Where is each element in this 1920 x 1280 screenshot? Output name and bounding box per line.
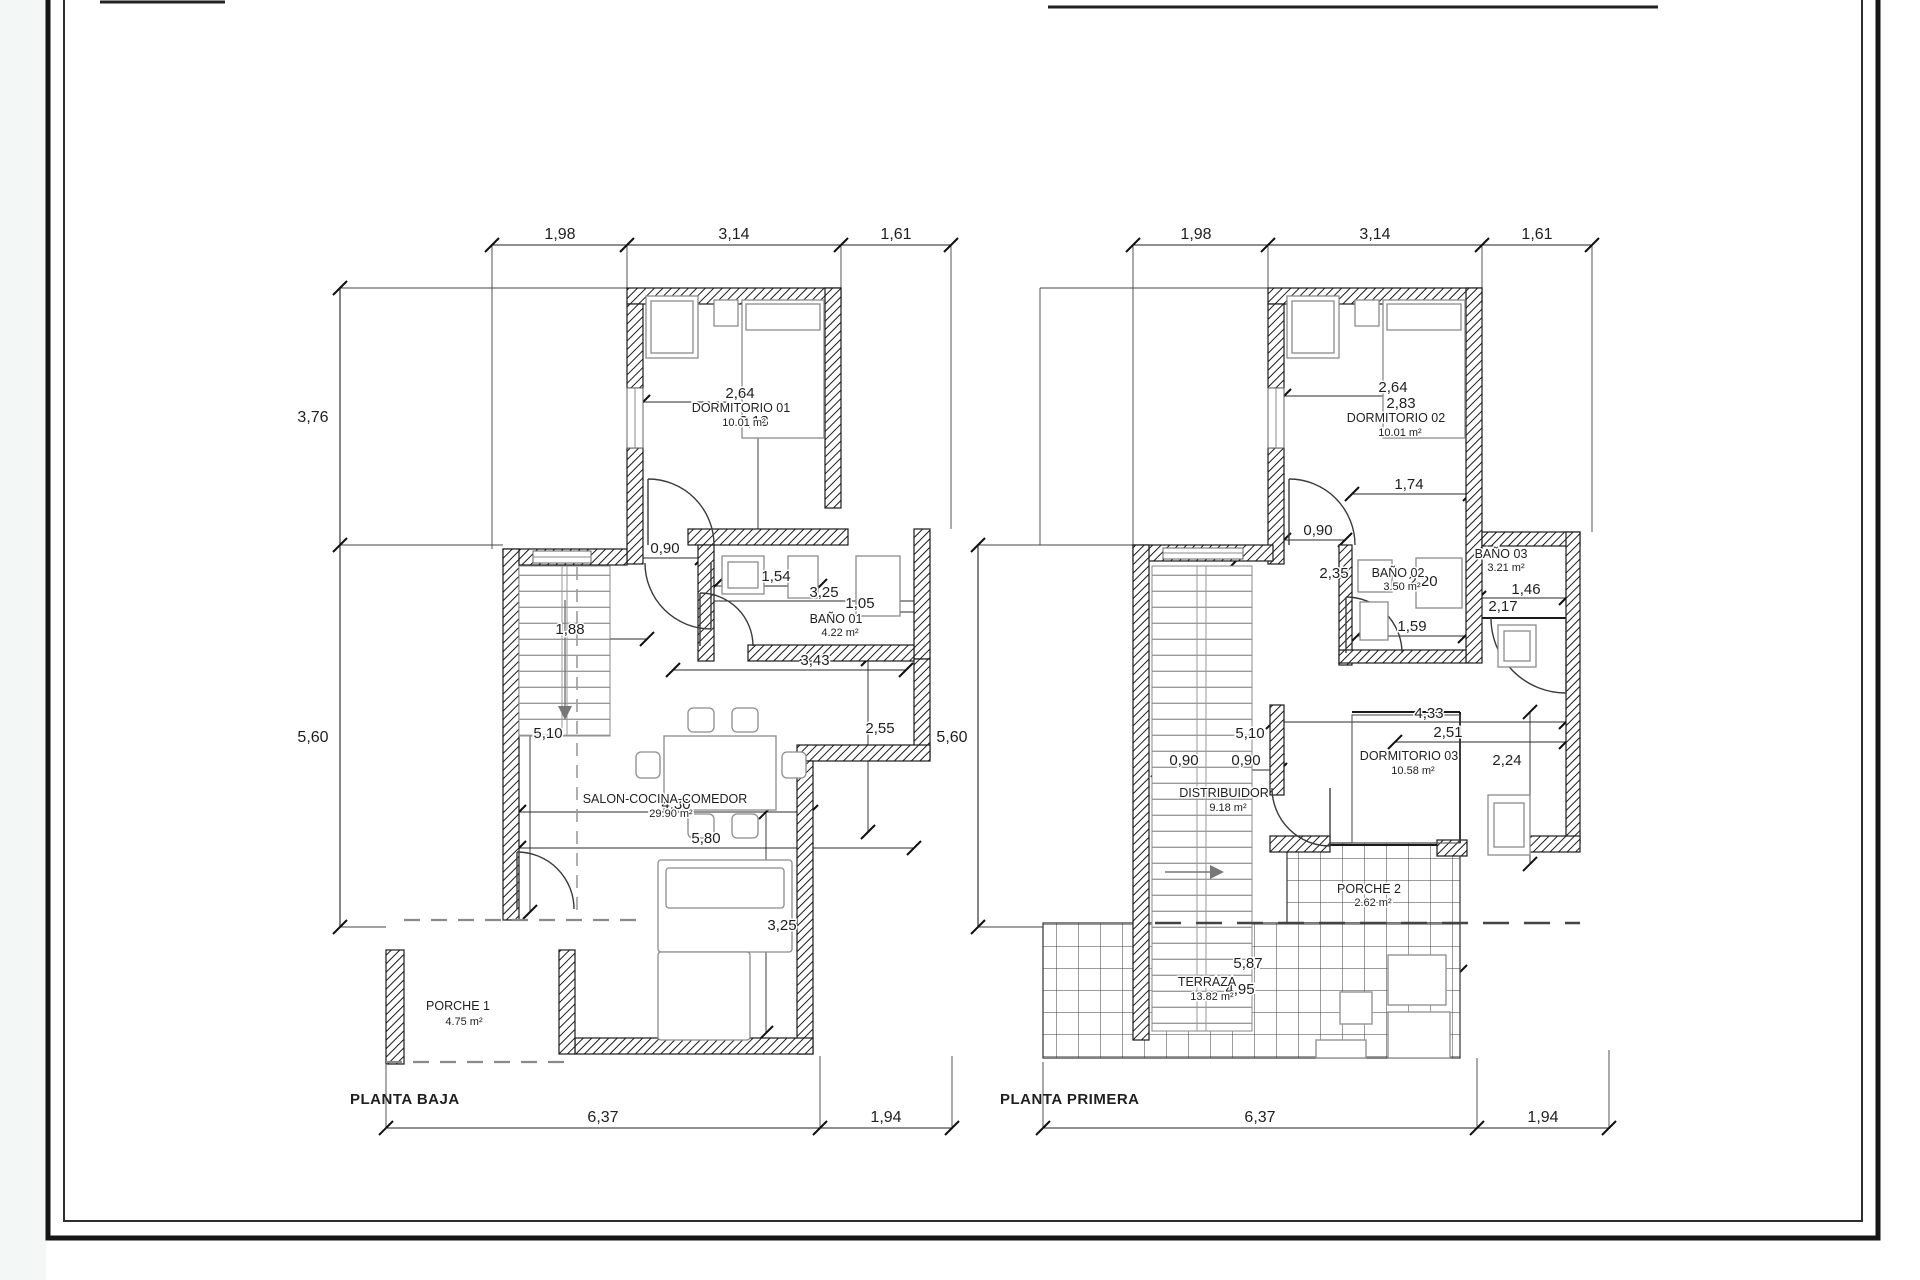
dim-primera-top-1: 3,14 xyxy=(1359,226,1390,243)
plan-title-primera: PLANTA PRIMERA xyxy=(1000,1091,1140,1108)
room-distribuidor: DISTRIBUIDOR xyxy=(1179,786,1269,800)
room-dormitorio-02-area: 10.01 m² xyxy=(1378,427,1422,439)
dim-baja-left-1: 5,60 xyxy=(297,729,328,746)
room-porche-1-area: 4.75 m² xyxy=(445,1016,483,1028)
dim-baja-255: 2,55 xyxy=(865,720,894,737)
room-bano-01: BAÑO 01 xyxy=(810,612,863,626)
dim-primera-top-2: 1,61 xyxy=(1521,226,1552,243)
dim-primera-bottom-1: 1,94 xyxy=(1527,1109,1558,1126)
dim-baja-343: 3,43 xyxy=(800,652,829,669)
room-salon: SALON-COCINA-COMEDOR xyxy=(583,792,748,806)
dim-baja-top-2: 1,61 xyxy=(880,226,911,243)
dim-primera-235: 2,35 xyxy=(1319,565,1348,582)
plan-planta-baja: 1,98 3,14 1,61 3,76 5,60 6,37 1,94 2,64 … xyxy=(297,226,959,1135)
room-distribuidor-area: 9.18 m² xyxy=(1209,802,1247,814)
terrace-lounger-2 xyxy=(1388,1012,1450,1058)
room-bano-02-area: 3.50 m² xyxy=(1383,581,1421,593)
dim-baja-left-0: 3,76 xyxy=(297,409,328,426)
room-bano-03-area: 3.21 m² xyxy=(1487,562,1525,574)
room-bano-03: BAÑO 03 xyxy=(1475,547,1528,561)
dim-baja-325a: 3,25 xyxy=(809,584,838,601)
dim-baja-188: 1,88 xyxy=(555,621,584,638)
dim-baja-bottom-1: 1,94 xyxy=(870,1109,901,1126)
sheet-frame xyxy=(0,0,1878,1280)
terrace-table xyxy=(1340,992,1372,1024)
dim-baja-top-0: 1,98 xyxy=(544,226,575,243)
dim-primera-left-0: 5,60 xyxy=(936,729,967,746)
dim-primera-224: 2,24 xyxy=(1492,752,1521,769)
room-porche-1: PORCHE 1 xyxy=(426,999,490,1013)
room-terraza-area: 13.82 m² xyxy=(1190,991,1234,1003)
stairs-baja xyxy=(519,566,610,736)
dim-baja-510: 5,10 xyxy=(533,725,562,742)
dim-primera-bottom-0: 6,37 xyxy=(1244,1109,1275,1126)
dim-baja-top-1: 3,14 xyxy=(718,226,749,243)
dim-primera-217: 2,17 xyxy=(1488,598,1517,615)
dim-primera-090b: 0,90 xyxy=(1169,752,1198,769)
room-terraza: TERRAZA xyxy=(1178,975,1237,989)
dim-primera-283: 2,83 xyxy=(1386,395,1415,412)
terrace-lounger-1 xyxy=(1388,955,1446,1005)
room-dormitorio-02: DORMITORIO 02 xyxy=(1347,411,1445,425)
dim-primera-top-0: 1,98 xyxy=(1180,226,1211,243)
dim-primera-174: 1,74 xyxy=(1394,476,1423,493)
room-dormitorio-03: DORMITORIO 03 xyxy=(1360,749,1458,763)
floor-plan-sheet: 1,98 3,14 1,61 3,76 5,60 6,37 1,94 2,64 … xyxy=(0,0,1920,1280)
plan-title-baja: PLANTA BAJA xyxy=(350,1091,460,1108)
extension-lines-baja xyxy=(340,245,952,1128)
room-salon-area: 29.90 m² xyxy=(649,808,693,820)
dim-primera-251: 2,51 xyxy=(1433,724,1462,741)
dim-primera-587: 5,87 xyxy=(1233,955,1262,972)
dim-baja-154: 1,54 xyxy=(761,568,790,585)
dim-primera-159: 1,59 xyxy=(1397,618,1426,635)
dim-primera-090a: 0,90 xyxy=(1303,522,1332,539)
dim-primera-090c: 0,90 xyxy=(1231,752,1260,769)
dim-primera-433: 4,33 xyxy=(1414,705,1443,722)
room-porche-2: PORCHE 2 xyxy=(1337,882,1401,896)
room-dormitorio-03-area: 10.58 m² xyxy=(1391,765,1435,777)
dim-baja-090: 0,90 xyxy=(650,540,679,557)
dimension-lines-baja xyxy=(340,245,952,1128)
plan-planta-primera: 1,98 3,14 1,61 5,60 6,37 1,94 2,64 2,83 … xyxy=(936,226,1616,1135)
dim-baja-264: 2,64 xyxy=(725,385,754,402)
dim-baja-325b: 3,25 xyxy=(767,917,796,934)
room-dormitorio-01: DORMITORIO 01 xyxy=(692,401,790,415)
dim-baja-580: 5,80 xyxy=(691,830,720,847)
dim-primera-146: 1,46 xyxy=(1511,581,1540,598)
windows-primera xyxy=(1163,388,1284,559)
terrace-seat xyxy=(1316,1040,1366,1058)
room-bano-02: BAÑO 02 xyxy=(1372,566,1425,580)
dim-baja-bottom-0: 6,37 xyxy=(587,1109,618,1126)
room-dormitorio-01-area: 10.01 m² xyxy=(722,417,766,429)
room-bano-01-area: 4.22 m² xyxy=(821,627,859,639)
room-porche-2-area: 2.62 m² xyxy=(1354,897,1392,909)
floor-plan-drawing: 1,98 3,14 1,61 3,76 5,60 6,37 1,94 2,64 … xyxy=(0,0,1920,1280)
dim-primera-510: 5,10 xyxy=(1235,725,1264,742)
dim-baja-105: 1,05 xyxy=(845,595,874,612)
dim-primera-264: 2,64 xyxy=(1378,379,1407,396)
